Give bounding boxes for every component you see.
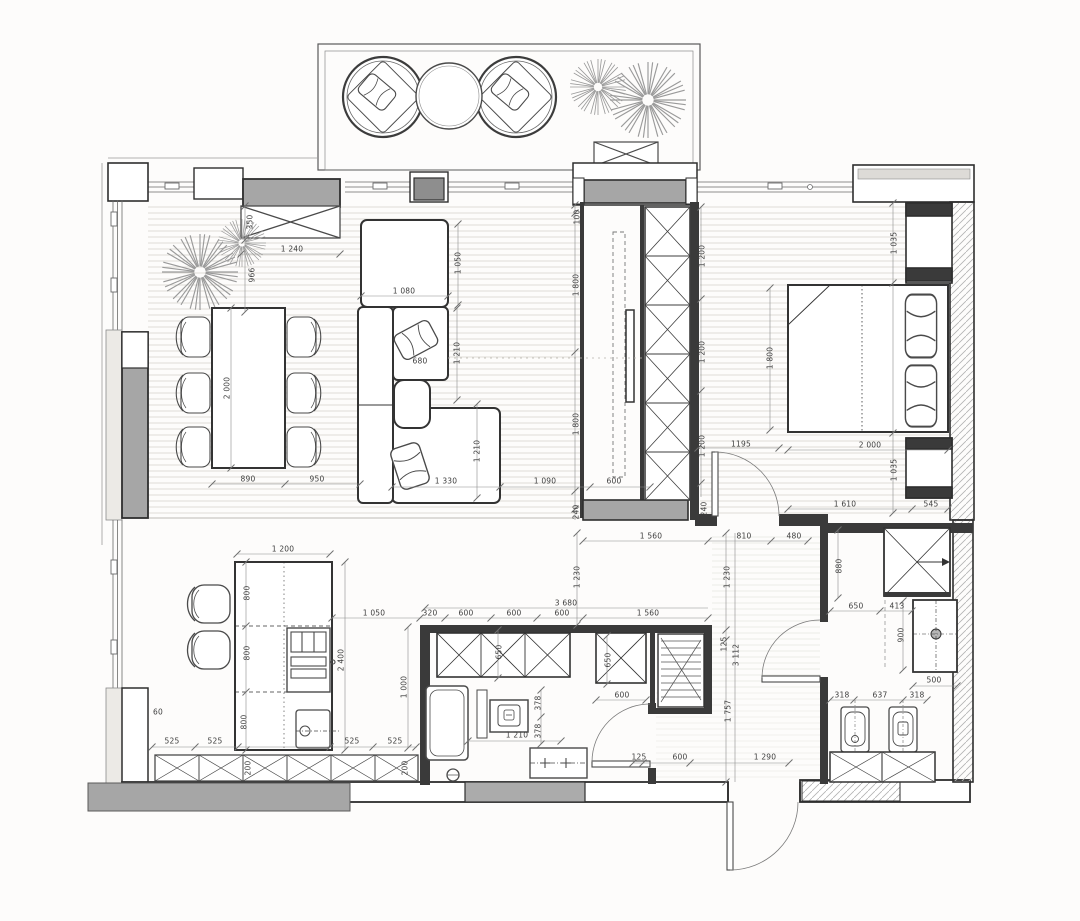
left-wall-bottom-outer bbox=[106, 688, 122, 786]
vanity-basin bbox=[530, 748, 587, 778]
dining-chair bbox=[176, 317, 210, 357]
vanity-sink bbox=[913, 600, 957, 672]
door-jamb bbox=[648, 768, 656, 784]
exterior-slab bbox=[88, 783, 350, 811]
washing-machine bbox=[477, 690, 528, 738]
left-window-1 bbox=[111, 200, 122, 332]
bathroom1-top-wall bbox=[420, 625, 712, 633]
wall-pier-gray bbox=[243, 179, 340, 207]
bathroom-cabinets bbox=[830, 752, 935, 782]
ottoman bbox=[394, 380, 430, 428]
right-wall-bedroom bbox=[950, 202, 974, 520]
storage-box bbox=[596, 633, 646, 683]
bar-stool bbox=[188, 585, 231, 623]
wardrobe bbox=[645, 207, 690, 500]
left-wall-bottom bbox=[122, 688, 148, 785]
wall-top-right-band bbox=[858, 169, 970, 179]
balcony-door-threshold bbox=[573, 163, 697, 205]
left-window-2 bbox=[111, 520, 122, 688]
left-pier-outer bbox=[106, 330, 122, 520]
dining-chair bbox=[176, 373, 210, 413]
bar-stool bbox=[188, 631, 231, 669]
dining-chair bbox=[287, 373, 321, 413]
floor-plan-drawing bbox=[0, 0, 1080, 921]
lounge-chair bbox=[343, 57, 423, 137]
closet-bottom-wall bbox=[650, 708, 712, 714]
wall-cabinet-row bbox=[437, 633, 570, 677]
dining-chair bbox=[287, 427, 321, 467]
hall-bath2-wall bbox=[820, 525, 828, 622]
tv-console bbox=[613, 232, 625, 477]
tv bbox=[626, 310, 634, 402]
base-cabinet-row bbox=[155, 755, 418, 781]
hall-bath2-wall bbox=[820, 677, 828, 784]
lounge-chair bbox=[476, 57, 556, 137]
door-jamb bbox=[648, 703, 656, 714]
living-bedroom-wall bbox=[690, 202, 699, 520]
wall-pier bbox=[108, 163, 148, 201]
dining-chair bbox=[176, 427, 210, 467]
nightstand bbox=[906, 438, 952, 498]
hallway-floor bbox=[712, 533, 820, 688]
bed-pillow-icon bbox=[905, 365, 936, 426]
floor-plan-page: 1 2401 0806808909501 3301 09060011952 00… bbox=[0, 0, 1080, 921]
shower bbox=[884, 528, 950, 597]
cooktop-oven bbox=[287, 628, 335, 692]
balcony bbox=[318, 44, 700, 170]
entrance-door bbox=[727, 802, 798, 870]
left-pier-notch bbox=[122, 332, 148, 368]
dining-table bbox=[212, 308, 285, 468]
tv-niche-wall bbox=[580, 202, 584, 518]
dining-chair bbox=[287, 317, 321, 357]
wardrobe-base-wall bbox=[583, 500, 688, 520]
bottom-wall-gray bbox=[465, 782, 585, 802]
bidet bbox=[889, 700, 917, 755]
bottom-wall-hatched bbox=[802, 781, 900, 801]
wardrobe-left-wall bbox=[640, 205, 644, 517]
linen-closet bbox=[658, 634, 704, 707]
radiator-cabinet bbox=[241, 206, 340, 238]
closet-right-wall bbox=[704, 625, 712, 713]
wall-pier bbox=[194, 168, 243, 199]
living-dining bbox=[153, 206, 690, 503]
round-coffee-table bbox=[416, 63, 482, 129]
plant-icon bbox=[601, 53, 694, 146]
square-lounge-table bbox=[361, 220, 448, 307]
bathroom-2 bbox=[830, 528, 957, 782]
double-bed bbox=[788, 285, 948, 432]
closet-left-wall bbox=[650, 628, 655, 710]
toilet bbox=[841, 700, 869, 755]
bathroom-door bbox=[592, 704, 650, 767]
wall-pier-gray bbox=[414, 178, 444, 200]
nightstand bbox=[906, 203, 952, 283]
bed-pillow-icon bbox=[905, 295, 936, 358]
bathtub bbox=[426, 686, 468, 781]
island-sink bbox=[296, 710, 340, 748]
